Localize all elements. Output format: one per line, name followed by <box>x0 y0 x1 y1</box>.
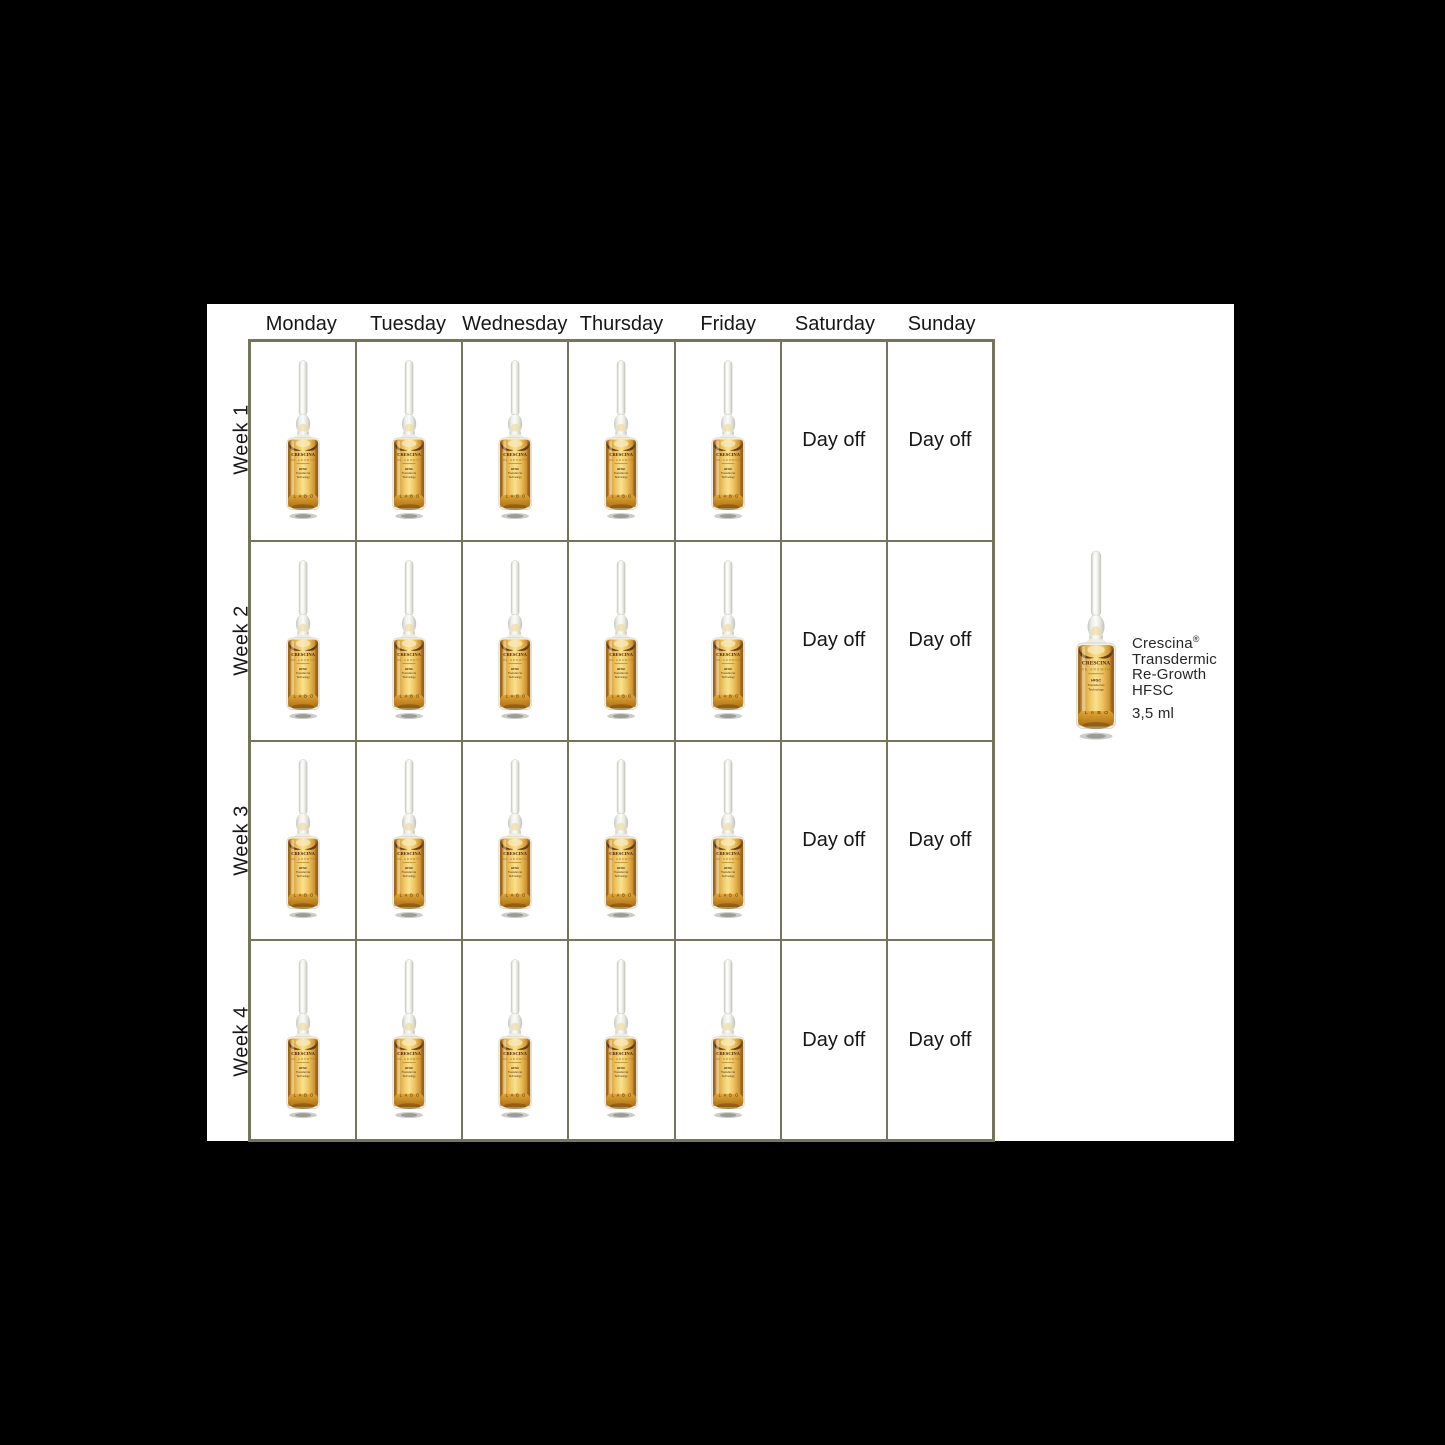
day-header-thursday: Thursday <box>568 313 675 336</box>
day-off-label: Day off <box>802 629 865 652</box>
ampoule-icon <box>383 358 435 521</box>
cell-week3-thursday <box>568 741 674 941</box>
ampoule-icon <box>489 757 541 920</box>
product-line-hfsc: HFSC <box>1132 683 1217 699</box>
cell-week2-thursday <box>568 541 674 741</box>
cell-week3-saturday: Day off <box>781 741 887 941</box>
ampoule-icon <box>277 957 329 1120</box>
cell-week1-wednesday <box>462 341 568 541</box>
cell-week4-tuesday <box>356 940 462 1140</box>
ampoule-icon <box>277 757 329 920</box>
product-volume: 3,5 ml <box>1132 706 1217 722</box>
ampoule-icon <box>489 558 541 721</box>
ampoule-icon <box>383 558 435 721</box>
cell-week2-wednesday <box>462 541 568 741</box>
cell-week4-wednesday <box>462 940 568 1140</box>
day-off-label: Day off <box>908 629 971 652</box>
cell-week2-friday <box>675 541 781 741</box>
ampoule-icon <box>595 957 647 1120</box>
cell-week4-friday <box>675 940 781 1140</box>
cell-week1-sunday: Day off <box>887 341 993 541</box>
day-header-row: Monday Tuesday Wednesday Thursday Friday… <box>248 311 995 337</box>
ampoule-icon <box>702 757 754 920</box>
cell-week3-monday <box>250 741 356 941</box>
day-header-friday: Friday <box>675 313 782 336</box>
schedule-infographic: Monday Tuesday Wednesday Thursday Friday… <box>207 304 1234 1141</box>
product-ampoule-icon <box>1065 548 1127 742</box>
week-label-column: Week 1 Week 2 Week 3 Week 4 <box>207 339 248 1142</box>
cell-week1-friday <box>675 341 781 541</box>
cell-week4-sunday: Day off <box>887 940 993 1140</box>
ampoule-icon <box>277 558 329 721</box>
product-name-block: Crescina® Transdermic Re-Growth HFSC 3,5… <box>1132 636 1217 722</box>
ampoule-icon <box>489 358 541 521</box>
cell-week3-tuesday <box>356 741 462 941</box>
ampoule-icon <box>702 558 754 721</box>
page: { "calendar": { "day_headers": ["Monday"… <box>0 0 1445 1445</box>
cell-week2-sunday: Day off <box>887 541 993 741</box>
day-off-label: Day off <box>802 829 865 852</box>
ampoule-icon <box>489 957 541 1120</box>
cell-week2-monday <box>250 541 356 741</box>
day-off-label: Day off <box>802 1029 865 1052</box>
ampoule-icon <box>595 757 647 920</box>
cell-week3-sunday: Day off <box>887 741 993 941</box>
cell-week1-monday <box>250 341 356 541</box>
cell-week2-saturday: Day off <box>781 541 887 741</box>
product-line-regrowth: Re-Growth <box>1132 667 1217 683</box>
ampoule-icon <box>595 558 647 721</box>
ampoule-icon <box>595 358 647 521</box>
cell-week1-tuesday <box>356 341 462 541</box>
ampoule-icon <box>702 358 754 521</box>
cell-week2-tuesday <box>356 541 462 741</box>
registered-mark: ® <box>1193 634 1200 644</box>
product-brand-line: Crescina® <box>1132 636 1217 652</box>
day-off-label: Day off <box>908 1029 971 1052</box>
product-line-transdermic: Transdermic <box>1132 652 1217 668</box>
day-off-label: Day off <box>908 429 971 452</box>
cell-week4-thursday <box>568 940 674 1140</box>
cell-week4-monday <box>250 940 356 1140</box>
day-header-sunday: Sunday <box>888 313 995 336</box>
cell-week3-wednesday <box>462 741 568 941</box>
day-header-saturday: Saturday <box>782 313 889 336</box>
cell-week3-friday <box>675 741 781 941</box>
day-off-label: Day off <box>908 829 971 852</box>
ampoule-icon <box>383 957 435 1120</box>
schedule-grid: Day off Day off Day off Day off Day off … <box>248 339 995 1142</box>
day-header-tuesday: Tuesday <box>355 313 462 336</box>
day-header-monday: Monday <box>248 313 355 336</box>
day-header-wednesday: Wednesday <box>461 313 568 336</box>
cell-week1-saturday: Day off <box>781 341 887 541</box>
ampoule-icon <box>277 358 329 521</box>
ampoule-icon <box>702 957 754 1120</box>
cell-week4-saturday: Day off <box>781 940 887 1140</box>
cell-week1-thursday <box>568 341 674 541</box>
day-off-label: Day off <box>802 429 865 452</box>
ampoule-icon <box>383 757 435 920</box>
